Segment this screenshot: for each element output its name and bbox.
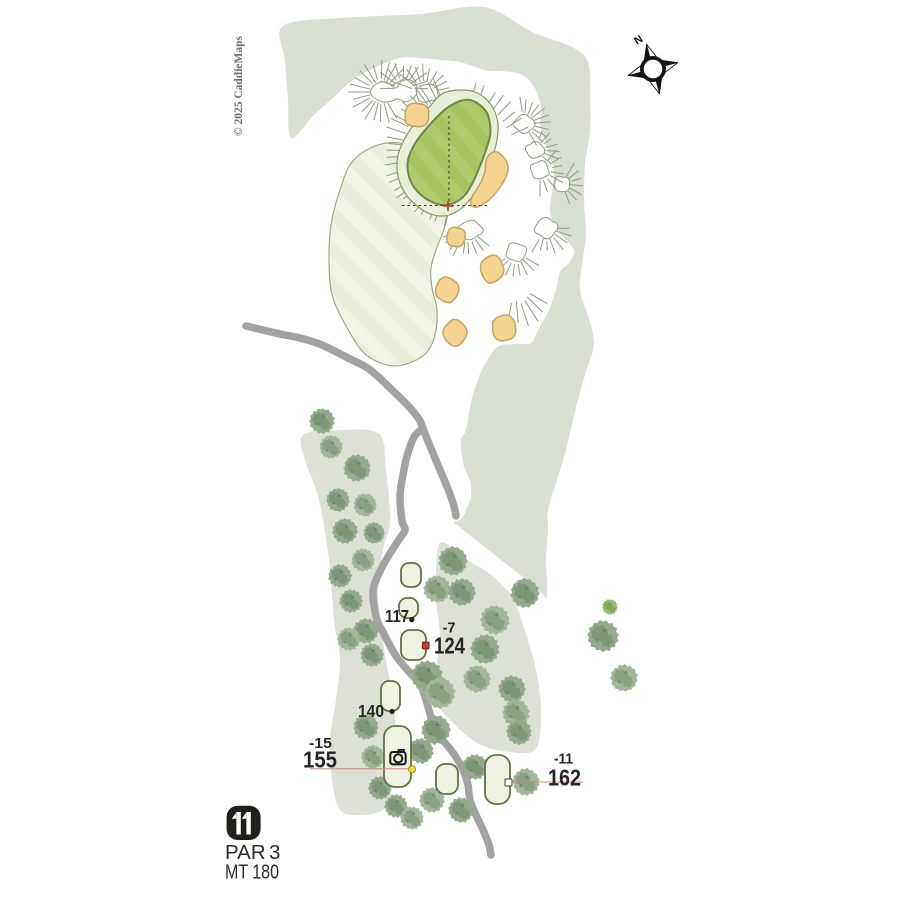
- svg-text:117: 117: [385, 606, 409, 626]
- svg-text:124: 124: [434, 633, 465, 659]
- svg-text:MT 180: MT 180: [225, 861, 279, 884]
- svg-text:155: 155: [303, 747, 337, 773]
- svg-text:© 2025 CaddieMaps: © 2025 CaddieMaps: [233, 36, 245, 136]
- svg-text:140: 140: [358, 701, 384, 721]
- svg-text:162: 162: [548, 765, 581, 791]
